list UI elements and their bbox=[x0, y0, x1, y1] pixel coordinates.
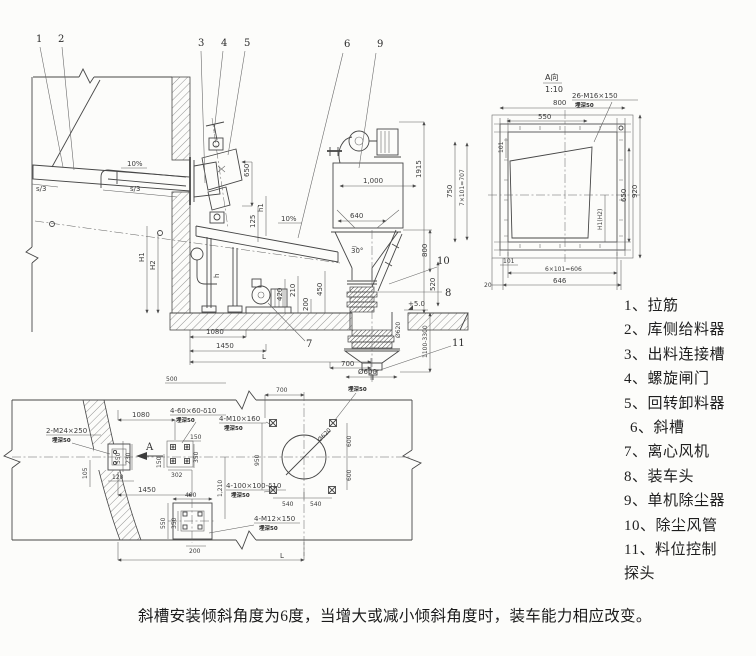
dim-slope-chute: 10% bbox=[281, 215, 297, 223]
dim-level: +5.0 bbox=[408, 300, 425, 308]
dim-H2: H2 bbox=[149, 260, 157, 270]
callout-8: 8 bbox=[445, 288, 451, 299]
dim-dia620: Ø620 bbox=[395, 322, 402, 338]
callout-1: 1 bbox=[36, 34, 42, 45]
dim-s3-left: s/3 bbox=[36, 185, 46, 193]
legend-item-4: 4、螺旋闸门 bbox=[624, 367, 754, 391]
plan-dim-540a: 540 bbox=[282, 501, 294, 508]
dim-range: 1100-3300 bbox=[422, 325, 429, 358]
legend-item-2: 2、库侧给料器 bbox=[624, 318, 754, 342]
dim-1915: 1915 bbox=[415, 160, 423, 178]
dim-dia600: Ø600 bbox=[358, 368, 377, 376]
plan-dim-350: 350 bbox=[193, 451, 200, 463]
view-note-500: 500 bbox=[166, 376, 178, 383]
dim-640: 640 bbox=[350, 212, 363, 220]
callout-3: 3 bbox=[198, 38, 204, 49]
parts-legend: 1、拉筋 2、库侧给料器 3、出料连接槽 4、螺旋闸门 5、回转卸料器 6、斜槽… bbox=[624, 294, 754, 587]
detail-scale: 1:10 bbox=[545, 85, 563, 94]
detail-bolt-label: 26-M16×150 bbox=[572, 92, 618, 100]
plan-dim-600b: 600 bbox=[346, 469, 353, 481]
dim-200: 200 bbox=[302, 298, 310, 311]
legend-item-10: 10、除尘风管 bbox=[624, 514, 754, 538]
plan-label-m12-note: 埋深50 bbox=[259, 524, 278, 532]
legend-item-3: 3、出料连接槽 bbox=[624, 343, 754, 367]
dim-1080: 1080 bbox=[206, 328, 224, 336]
legend-item-7: 7、离心风机 bbox=[624, 440, 754, 464]
legend-item-11: 11、料位控制 bbox=[624, 538, 754, 562]
detail-dim-800: 800 bbox=[553, 99, 566, 107]
plan-dim-1080: 1080 bbox=[132, 411, 150, 419]
plan-dim-350b: 350 bbox=[171, 517, 178, 529]
plan-dim-550: 550 bbox=[115, 452, 122, 464]
legend-item-1: 1、拉筋 bbox=[624, 294, 754, 318]
plan-label-g60-note: 埋深50 bbox=[176, 416, 195, 424]
dim-s3-mid: s/3 bbox=[130, 185, 140, 193]
dim-1000: 1,000 bbox=[363, 177, 383, 185]
detail-dim-606: 6×101=606 bbox=[545, 266, 582, 273]
detail-dim-920: 920 bbox=[631, 185, 639, 198]
legend-item-6: 6、斜槽 bbox=[624, 416, 754, 440]
plan-dim-1450: 1450 bbox=[138, 486, 156, 494]
callout-9: 9 bbox=[377, 39, 383, 50]
plan-label-m10: 4-M10×160 bbox=[219, 415, 260, 423]
detail-dim-550: 550 bbox=[538, 113, 551, 121]
dim-1450: 1450 bbox=[216, 342, 234, 350]
dim-L: L bbox=[262, 353, 266, 361]
dim-H1: H1 bbox=[138, 252, 146, 262]
plan-dim-600a: 600 bbox=[346, 435, 353, 447]
legend-item-5: 5、回转卸料器 bbox=[624, 392, 754, 416]
dim-700: 700 bbox=[341, 360, 354, 368]
legend-item-11-wrap: 探头 bbox=[624, 562, 754, 586]
dim-650: 650 bbox=[243, 164, 251, 177]
plan-label-m24-note: 埋深50 bbox=[52, 436, 71, 444]
plan-view-arrow-label: A bbox=[145, 442, 154, 453]
plan-view: A 2-M24×250 埋深50 550 230 120 105 1080 14… bbox=[4, 385, 421, 560]
detail-view-a: A向 1:10 26-M16×150 埋深50 800 550 750 7×10… bbox=[446, 72, 640, 290]
plan-dim-540b: 540 bbox=[310, 501, 322, 508]
detail-dim-750: 750 bbox=[446, 185, 454, 198]
detail-dim-h1h2: H1(H2) bbox=[597, 209, 604, 230]
detail-title: A向 bbox=[545, 72, 558, 82]
detail-dim-20: 20 bbox=[484, 282, 492, 289]
plan-dim-L: L bbox=[280, 552, 284, 560]
dim-h: h bbox=[213, 274, 221, 278]
callout-4: 4 bbox=[221, 38, 227, 49]
detail-dim-650: 650 bbox=[620, 189, 628, 202]
plan-dim-105: 105 bbox=[82, 467, 89, 479]
plan-dim-400: 400 bbox=[185, 492, 197, 499]
callout-6: 6 bbox=[344, 39, 350, 50]
plan-label-g100: 4-100×100-δ10 bbox=[226, 482, 281, 490]
dim-450: 450 bbox=[316, 283, 324, 296]
dim-h1: h1 bbox=[257, 203, 265, 212]
callout-11: 11 bbox=[452, 338, 465, 349]
dim-520: 520 bbox=[429, 278, 437, 291]
legend-item-8: 8、装车头 bbox=[624, 465, 754, 489]
dim-30deg: 30° bbox=[351, 247, 363, 255]
callout-10: 10 bbox=[437, 256, 450, 267]
plan-label-g60: 4-60×60-δ10 bbox=[170, 407, 216, 415]
detail-dim-646: 646 bbox=[553, 277, 567, 285]
dim-420: 420 bbox=[276, 288, 284, 301]
drawing-sheet: 1 2 3 4 5 6 9 7 8 10 11 10% s/3 s/3 10% … bbox=[0, 0, 756, 656]
plan-label-m10-note: 埋深50 bbox=[224, 424, 243, 432]
plan-dim-550b: 550 bbox=[160, 517, 167, 529]
plan-dim-230: 230 bbox=[125, 452, 132, 464]
plan-dim-150a: 150 bbox=[190, 434, 202, 441]
plan-label-m24: 2-M24×250 bbox=[46, 427, 87, 435]
dim-800: 800 bbox=[421, 244, 429, 257]
plan-dim-950: 950 bbox=[254, 454, 261, 466]
detail-dim-101t: 101 bbox=[498, 141, 505, 153]
drawing-caption: 斜槽安装倾斜角度为6度，当增大或减小倾斜角度时，装车能力相应改变。 bbox=[138, 604, 698, 626]
plan-dim-200: 200 bbox=[189, 548, 201, 555]
elevation-view: 1 2 3 4 5 6 9 7 8 10 11 10% s/3 s/3 10% … bbox=[26, 34, 468, 383]
plan-dim-302: 302 bbox=[171, 472, 183, 479]
plan-dim-dia620: Ø620 bbox=[317, 427, 334, 444]
callout-7: 7 bbox=[306, 339, 312, 350]
plan-dim-1210: 1,210 bbox=[217, 480, 224, 497]
dim-slope-pipe: 10% bbox=[127, 160, 143, 168]
detail-dim-707: 7×101=707 bbox=[459, 169, 466, 206]
dim-210: 210 bbox=[289, 284, 297, 297]
plan-label-m10-note2: 埋深50 bbox=[348, 385, 367, 393]
callout-2: 2 bbox=[58, 34, 64, 45]
detail-dim-101b: 101 bbox=[503, 258, 515, 265]
plan-dim-700: 700 bbox=[276, 387, 288, 394]
dim-125: 125 bbox=[249, 215, 257, 228]
callout-5: 5 bbox=[244, 38, 250, 49]
legend-item-9: 9、单机除尘器 bbox=[624, 489, 754, 513]
plan-label-g100-note: 埋深50 bbox=[231, 491, 250, 499]
plan-label-m12: 4-M12×150 bbox=[254, 515, 295, 523]
plan-dim-150b: 150 bbox=[156, 456, 163, 468]
